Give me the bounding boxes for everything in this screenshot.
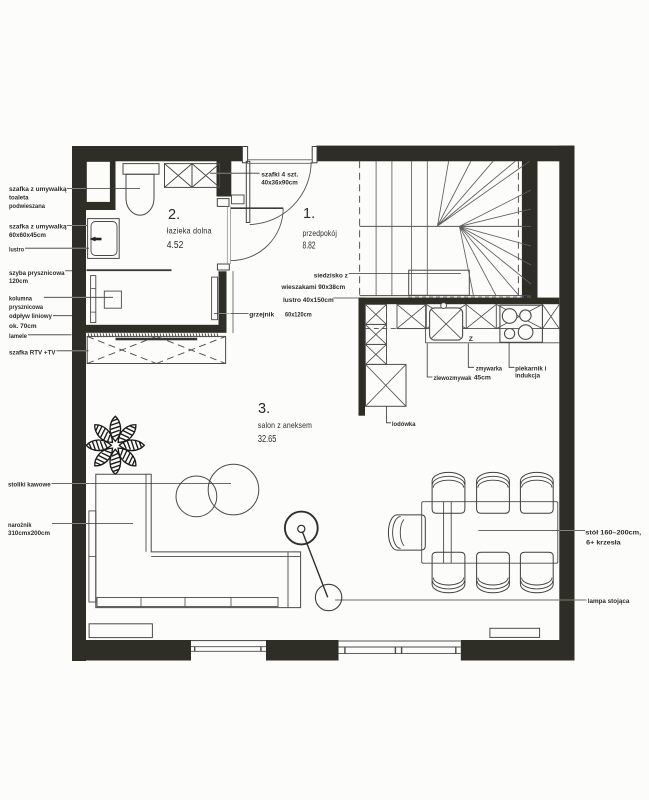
svg-text:wieszakami 90x38cm: wieszakami 90x38cm xyxy=(280,284,345,291)
svg-text:45cm: 45cm xyxy=(474,374,491,381)
svg-text:szyba prysznicowa: szyba prysznicowa xyxy=(9,270,65,277)
svg-text:8.82: 8.82 xyxy=(303,241,316,252)
svg-text:salon z aneksem: salon z aneksem xyxy=(258,420,312,430)
svg-text:32.65: 32.65 xyxy=(258,434,277,445)
svg-text:narożnik: narożnik xyxy=(8,522,32,529)
svg-text:60x120cm: 60x120cm xyxy=(285,312,312,319)
svg-text:60x60x45cm: 60x60x45cm xyxy=(9,232,46,239)
svg-text:szafka RTV +TV: szafka RTV +TV xyxy=(9,350,56,357)
svg-text:lodówka: lodówka xyxy=(392,421,416,428)
svg-text:siedzisko z: siedzisko z xyxy=(314,273,349,280)
svg-text:310cmx200cm: 310cmx200cm xyxy=(8,530,50,537)
svg-text:prysznicowa: prysznicowa xyxy=(9,304,43,311)
svg-text:lustro 40x150cm: lustro 40x150cm xyxy=(283,297,334,304)
svg-text:6+ krzesła: 6+ krzesła xyxy=(586,540,621,547)
svg-text:indukcja: indukcja xyxy=(515,373,540,380)
svg-text:grzejnik: grzejnik xyxy=(249,312,274,319)
svg-text:szafki 4 szt.: szafki 4 szt. xyxy=(261,172,298,179)
svg-text:2.: 2. xyxy=(168,207,180,223)
svg-text:szafka z umywalką: szafka z umywalką xyxy=(9,186,67,193)
svg-text:Z: Z xyxy=(469,336,473,343)
svg-text:szafka z umywalką: szafka z umywalką xyxy=(9,224,67,231)
svg-text:1.: 1. xyxy=(303,206,315,222)
svg-text:stół 160–200cm,: stół 160–200cm, xyxy=(585,530,641,537)
svg-text:kolumna: kolumna xyxy=(9,296,32,303)
svg-text:zmywarka: zmywarka xyxy=(476,365,502,372)
svg-text:lustro: lustro xyxy=(9,247,24,254)
svg-text:ok. 70cm: ok. 70cm xyxy=(9,323,37,330)
svg-text:piekarnik i: piekarnik i xyxy=(515,365,546,372)
svg-text:3.: 3. xyxy=(258,401,270,417)
svg-text:przedpokój: przedpokój xyxy=(303,228,338,238)
svg-text:odpływ liniowy: odpływ liniowy xyxy=(9,313,52,320)
svg-text:zlewozmywak: zlewozmywak xyxy=(434,375,472,382)
svg-text:toaleta: toaleta xyxy=(9,194,29,201)
svg-text:stoliki kawowe: stoliki kawowe xyxy=(8,481,51,488)
svg-text:40x36x90cm: 40x36x90cm xyxy=(261,180,298,187)
svg-text:4.52: 4.52 xyxy=(167,240,184,251)
svg-text:łazieka dolna: łazieka dolna xyxy=(167,226,212,236)
svg-text:lamele: lamele xyxy=(9,333,27,340)
svg-text:120cm: 120cm xyxy=(9,278,28,285)
svg-text:podwieszana: podwieszana xyxy=(9,203,45,210)
svg-text:lampa stojąca: lampa stojąca xyxy=(588,598,630,605)
